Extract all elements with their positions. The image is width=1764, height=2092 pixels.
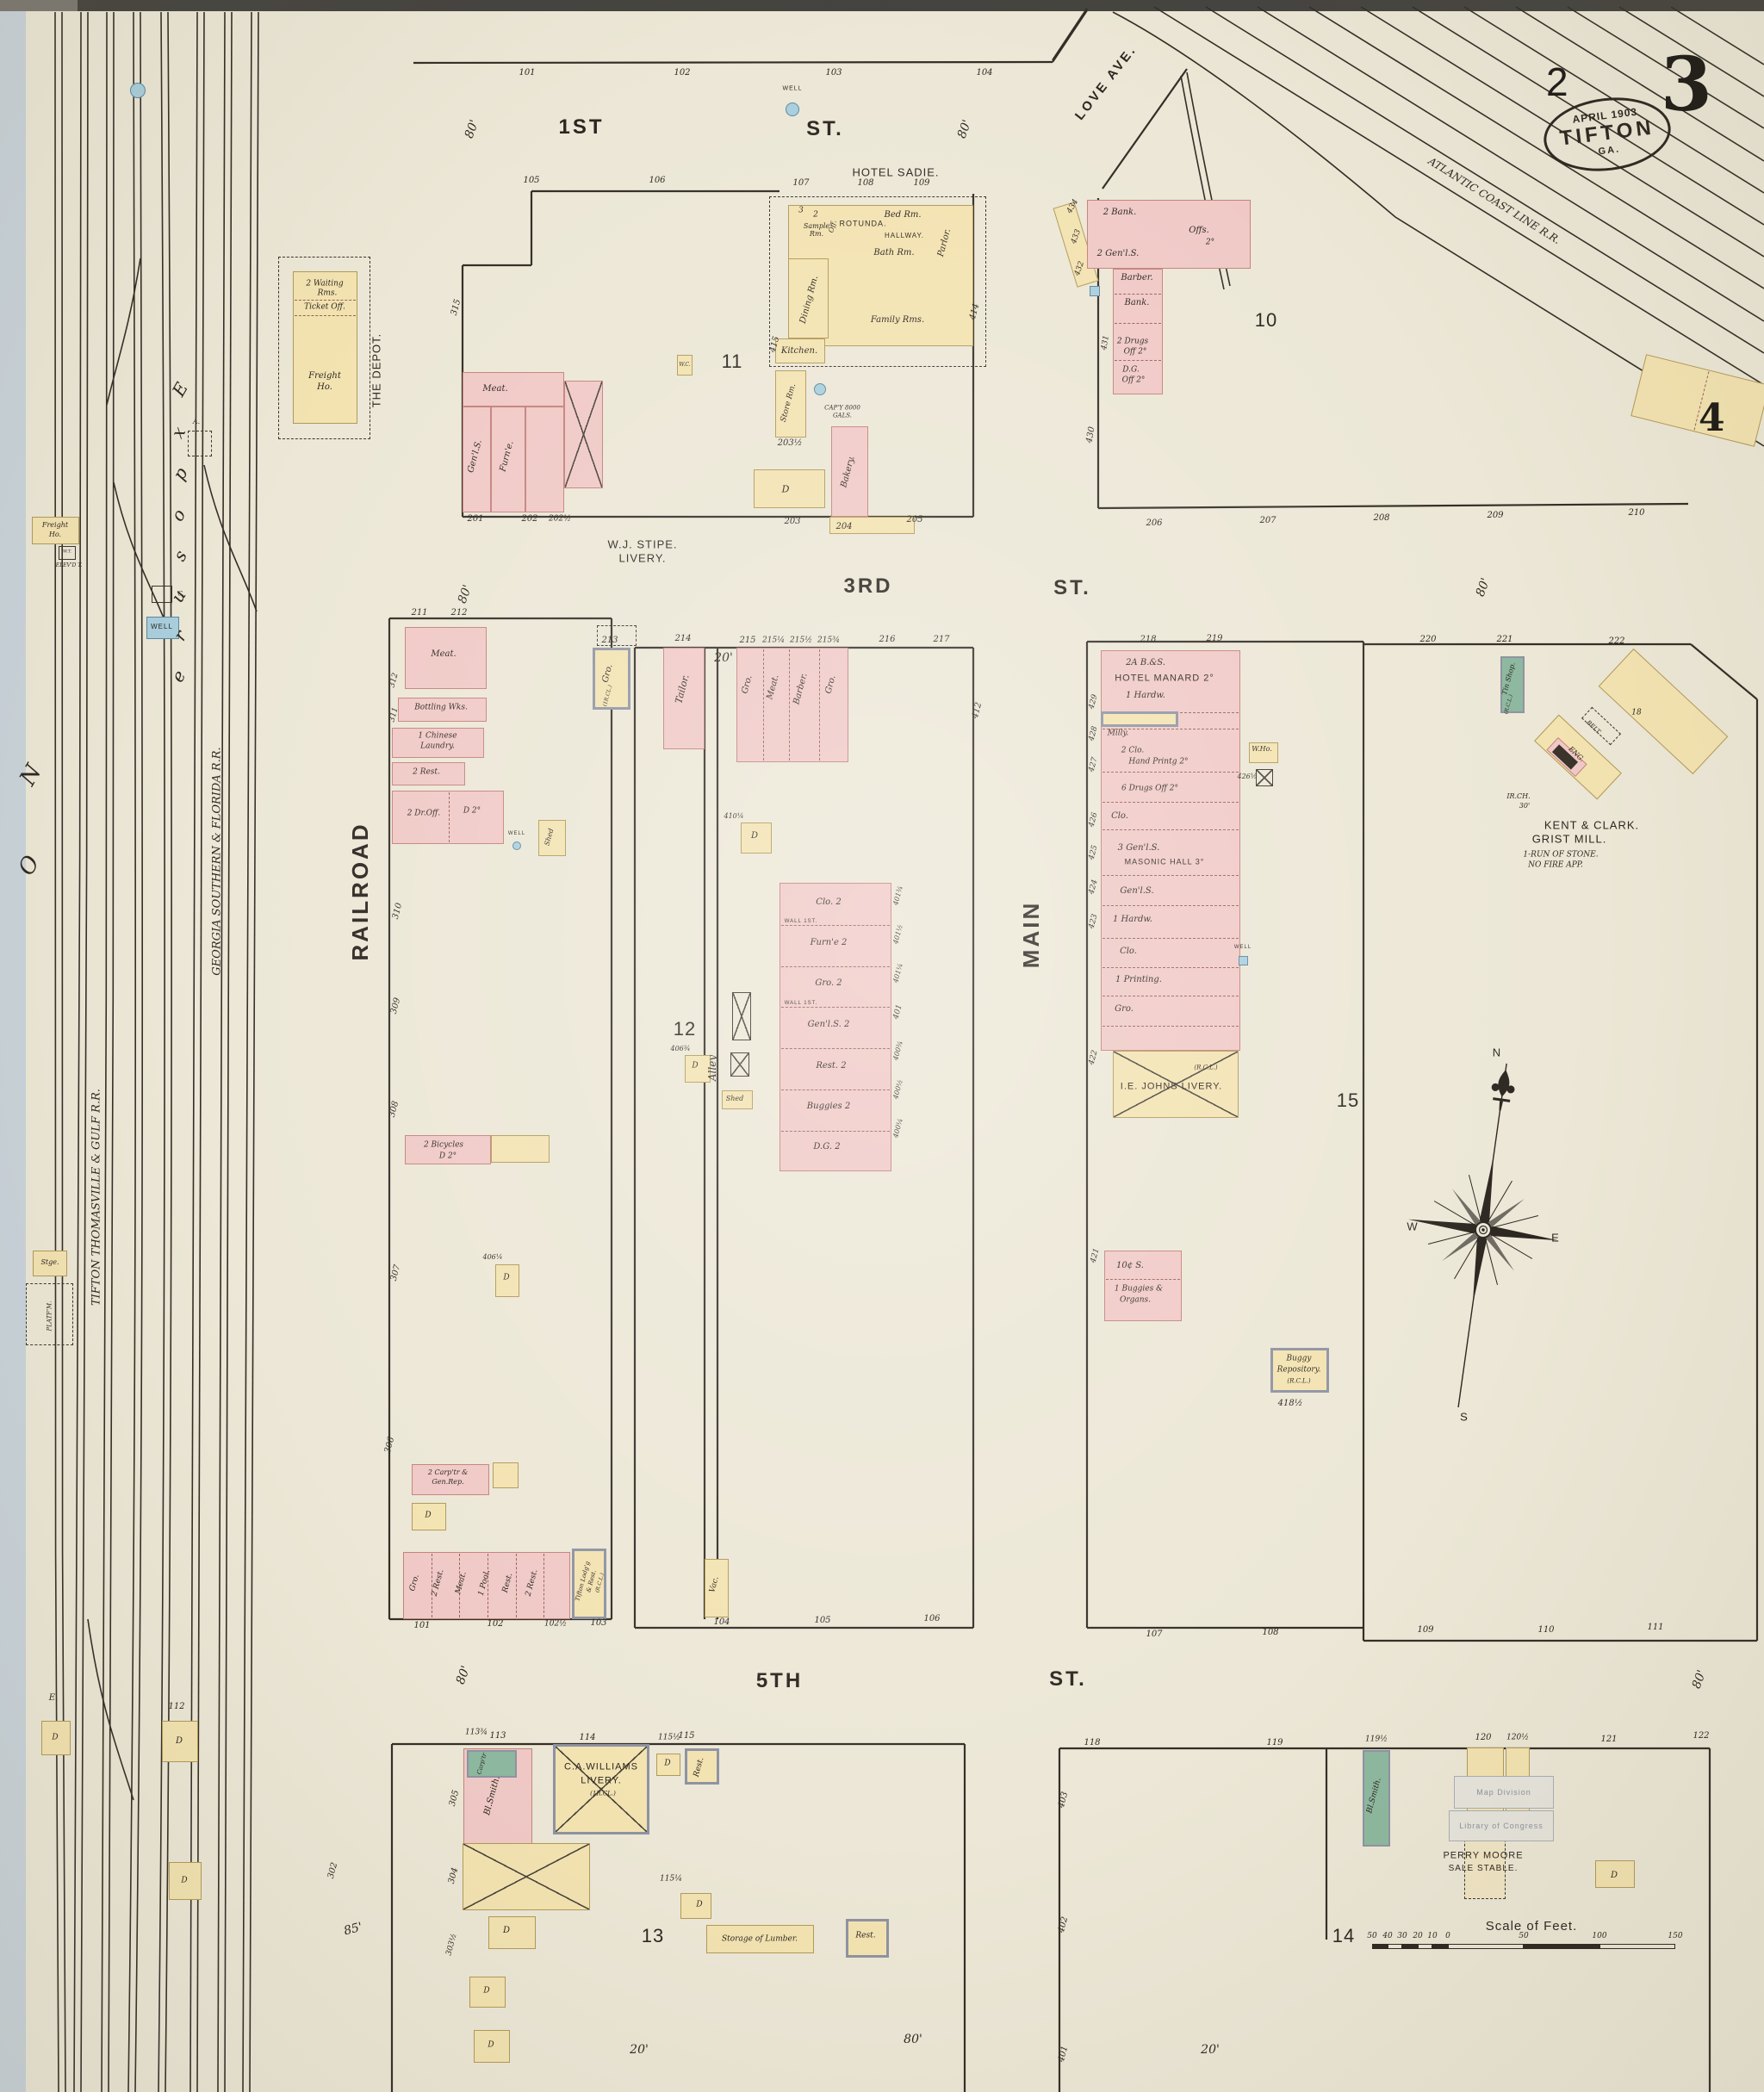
well bbox=[1239, 956, 1248, 965]
map-label: D 2° bbox=[439, 1153, 457, 1161]
map-label: 206 bbox=[1146, 519, 1162, 528]
party-wall-line bbox=[763, 649, 764, 760]
map-label: Ho. bbox=[317, 383, 332, 392]
map-label: 105 bbox=[523, 177, 539, 185]
party-wall-line bbox=[1102, 905, 1239, 906]
tower bbox=[732, 992, 751, 1040]
map-label: 103 bbox=[590, 1619, 606, 1628]
map-label: 426½ bbox=[1237, 773, 1257, 780]
map-label: 121 bbox=[1600, 1735, 1617, 1744]
map-label: 109 bbox=[1417, 1626, 1433, 1635]
map-label: Shed bbox=[726, 1096, 744, 1102]
map-label: 107 bbox=[792, 179, 809, 188]
map-label: Bottling Wks. bbox=[414, 705, 468, 712]
map-label: D bbox=[692, 1063, 698, 1071]
map-label: 1 Chinese bbox=[418, 733, 457, 741]
scale-tick: 10 bbox=[1427, 1932, 1437, 1940]
perry-moore-label: PERRY MOORE bbox=[1443, 1852, 1523, 1861]
map-label: Repository. bbox=[1277, 1367, 1321, 1375]
map-label: SALE STABLE. bbox=[1449, 1865, 1519, 1873]
map-label: 10¢ S. bbox=[1116, 1262, 1144, 1270]
map-label: Freight bbox=[42, 522, 68, 529]
map-label: 215 bbox=[739, 636, 755, 645]
map-label: (R.C.L.) bbox=[1287, 1379, 1310, 1385]
map-label: Freight bbox=[308, 372, 341, 381]
map-label: 215½ bbox=[790, 637, 812, 645]
map-label: 218 bbox=[1140, 636, 1156, 644]
map-label: HALLWAY. bbox=[885, 233, 924, 239]
map-label: WELL bbox=[1234, 945, 1252, 950]
map-label: Milly. bbox=[1108, 730, 1129, 738]
store-row bbox=[736, 648, 848, 762]
map-label: 203½ bbox=[778, 439, 803, 448]
map-label: Bed Rm. bbox=[884, 211, 921, 220]
railroad-track bbox=[114, 482, 168, 629]
johns-livery-label: I.E. JOHNS LIVERY. bbox=[1121, 1083, 1222, 1092]
map-label: 2° bbox=[1206, 239, 1214, 247]
map-label: WELL bbox=[782, 86, 802, 92]
party-wall-line bbox=[1115, 360, 1161, 361]
map-label: 209 bbox=[1487, 512, 1503, 520]
scale-segment bbox=[1599, 1944, 1675, 1949]
map-label: D bbox=[483, 1988, 489, 1996]
map-label: Buggies 2 bbox=[807, 1102, 850, 1111]
map-label: 202 bbox=[521, 515, 537, 524]
compass-n: N bbox=[1493, 1047, 1501, 1058]
map-label: E. bbox=[49, 1694, 58, 1703]
map-label: Gen.Rep. bbox=[432, 1479, 463, 1486]
party-wall-line bbox=[1102, 1026, 1239, 1027]
map-label: Family Rms. bbox=[871, 316, 924, 325]
party-wall-line bbox=[1102, 802, 1239, 803]
map-label: 109 bbox=[913, 179, 929, 188]
map-label: 220 bbox=[1419, 636, 1436, 644]
map-label: 106 bbox=[923, 1615, 940, 1623]
map-label: Gro. 2 bbox=[815, 979, 842, 988]
party-wall-line bbox=[543, 1554, 544, 1617]
block-number-13: 13 bbox=[642, 1927, 664, 1946]
party-wall-line bbox=[1102, 967, 1239, 968]
street-line bbox=[413, 62, 1053, 63]
williams-livery-building bbox=[553, 1744, 649, 1834]
map-label: D bbox=[176, 1737, 183, 1746]
map-label: Offs. bbox=[1189, 227, 1209, 235]
map-label: D 2° bbox=[463, 808, 481, 816]
map-label: 211 bbox=[411, 609, 427, 618]
map-label: Gro. bbox=[1115, 1005, 1134, 1014]
barn bbox=[463, 1843, 590, 1910]
map-label: 221 bbox=[1496, 636, 1512, 644]
railroad-track bbox=[81, 12, 88, 2092]
map-label: Rest. 2 bbox=[816, 1062, 846, 1071]
well-icon bbox=[130, 83, 146, 98]
map-label: 410¼ bbox=[724, 813, 743, 820]
street-1st: 1ST bbox=[558, 117, 604, 138]
map-label: 2 Rest. bbox=[413, 769, 440, 777]
map-label: 418½ bbox=[1278, 1400, 1303, 1408]
map-label: 212 bbox=[450, 609, 467, 618]
railroad-track bbox=[158, 12, 165, 2092]
map-label: Clo. bbox=[1111, 812, 1128, 821]
map-label: D.G. bbox=[1122, 367, 1140, 375]
sanborn-map-sheet: 1STST.3RDST.5THST.MAINRAILROADLOVE AVE.A… bbox=[0, 0, 1764, 2092]
scale-segment bbox=[1432, 1944, 1448, 1949]
map-label: Off 2° bbox=[1124, 349, 1147, 357]
map-label: IR.CH. bbox=[1506, 793, 1530, 800]
railroad-track bbox=[197, 12, 206, 2092]
map-label: 2 Dr.Off. bbox=[407, 810, 441, 818]
street-3rd-st: ST. bbox=[1053, 578, 1091, 599]
loc-stamp-map-division: Map Division bbox=[1454, 1776, 1554, 1809]
party-wall-line bbox=[781, 1048, 890, 1049]
loc-stamp-library: Library of Congress bbox=[1449, 1810, 1554, 1841]
tower bbox=[730, 1052, 749, 1077]
party-wall-line bbox=[449, 792, 450, 842]
party-wall-line bbox=[781, 925, 890, 926]
building-y bbox=[491, 1135, 550, 1163]
map-label: 2A B.&S. bbox=[1126, 659, 1165, 667]
scale-segment bbox=[1524, 1944, 1599, 1949]
street-railroad: RAILROAD bbox=[349, 822, 371, 960]
map-label: 119½ bbox=[1365, 1736, 1388, 1744]
map-label: 108 bbox=[857, 179, 873, 188]
map-label: 20' bbox=[630, 2044, 649, 2056]
map-label: GRIST MILL. bbox=[1532, 834, 1607, 845]
map-label: 101 bbox=[519, 69, 535, 78]
map-label: 2 Drugs bbox=[1117, 338, 1148, 346]
alley-label: Alley bbox=[707, 1055, 717, 1081]
map-label: 217 bbox=[933, 636, 949, 644]
map-label: 202½ bbox=[549, 516, 571, 524]
map-label: 102½ bbox=[544, 1621, 567, 1629]
street-1st-st: ST. bbox=[806, 119, 844, 140]
map-label: Clo. 2 bbox=[816, 898, 841, 907]
map-label: 20' bbox=[714, 652, 733, 664]
railroad-track bbox=[74, 12, 81, 2092]
map-label: 208 bbox=[1373, 514, 1389, 523]
map-label: 1 Hardw. bbox=[1126, 692, 1165, 700]
map-label: D.G. 2 bbox=[813, 1143, 840, 1152]
lumber-storage-label: Storage of Lumber. bbox=[722, 1936, 798, 1944]
bank-label: 2 Bank. bbox=[1103, 208, 1137, 217]
railroad-track bbox=[54, 12, 59, 2092]
map-label: D bbox=[503, 1275, 509, 1282]
masonic-hall-label: MASONIC HALL 3° bbox=[1125, 859, 1205, 866]
map-label: 6 Drugs Off 2° bbox=[1121, 785, 1178, 793]
map-label: LIVERY. bbox=[581, 1777, 622, 1786]
railroad-track bbox=[165, 12, 171, 2092]
scale-tick: 30 bbox=[1397, 1932, 1407, 1940]
map-label: NO FIRE APP. bbox=[1528, 862, 1583, 870]
scale-label: Scale of Feet. bbox=[1486, 1920, 1578, 1933]
party-wall-line bbox=[781, 1089, 890, 1090]
map-label: 114 bbox=[579, 1734, 595, 1742]
block-number-12: 12 bbox=[674, 1020, 696, 1039]
grocery-ironclad bbox=[593, 648, 630, 710]
map-label: 216 bbox=[879, 636, 895, 644]
map-label: 2 Gen'l.S. bbox=[1097, 250, 1140, 258]
well-icon bbox=[814, 383, 826, 395]
map-label: 102 bbox=[487, 1620, 503, 1629]
map-label: 18 bbox=[1631, 710, 1641, 717]
compass-e: E bbox=[1551, 1232, 1560, 1244]
party-wall-line bbox=[781, 966, 890, 967]
stipe-livery-label: W.J. STIPE. bbox=[607, 539, 677, 550]
map-label: ELEV'D T. bbox=[56, 563, 82, 568]
building-g bbox=[1101, 711, 1178, 727]
map-label: 110 bbox=[1537, 1626, 1554, 1635]
scale-segment bbox=[1372, 1944, 1388, 1949]
map-label: D bbox=[782, 485, 790, 494]
map-label: WELL bbox=[151, 624, 173, 630]
hotel-manard-label: HOTEL MANARD 2° bbox=[1115, 674, 1214, 684]
map-label: 406¾ bbox=[670, 1046, 690, 1052]
map-label: 213 bbox=[601, 636, 618, 645]
railroad-track bbox=[109, 12, 114, 2092]
map-label: 104 bbox=[976, 69, 992, 78]
map-label: GALS. bbox=[833, 413, 852, 419]
map-label: 115½ bbox=[658, 1735, 680, 1742]
map-label: 101 bbox=[413, 1622, 430, 1630]
adjacent-sheet-2: 2 bbox=[1546, 59, 1568, 105]
dwelling bbox=[488, 1916, 536, 1949]
map-label: 406¼ bbox=[482, 1254, 502, 1261]
map-label: 207 bbox=[1259, 517, 1276, 525]
map-label: WELL bbox=[508, 831, 525, 836]
map-label: Sample bbox=[804, 223, 829, 230]
map-label: Barber. bbox=[1121, 274, 1152, 282]
party-wall-line bbox=[295, 315, 356, 316]
street-5th-st: ST. bbox=[1049, 1669, 1087, 1690]
map-label: W.Ho. bbox=[1252, 746, 1272, 753]
map-label: 102 bbox=[674, 69, 690, 78]
building-b bbox=[1090, 286, 1100, 296]
scale-segment bbox=[1402, 1944, 1418, 1949]
map-label: Rest. bbox=[855, 1933, 875, 1940]
map-label: PLATF'M. bbox=[47, 1301, 53, 1332]
map-label: D bbox=[503, 1927, 510, 1935]
map-label: Rms. bbox=[318, 290, 338, 298]
map-label: 115 bbox=[678, 1732, 694, 1741]
map-label: ROTUNDA. bbox=[840, 220, 887, 228]
street-3rd: 3RD bbox=[843, 576, 892, 597]
map-label: 113¾ bbox=[465, 1729, 488, 1737]
street-5th: 5TH bbox=[756, 1671, 803, 1692]
party-wall-line bbox=[789, 649, 790, 760]
map-label: Stge. bbox=[40, 1259, 59, 1266]
map-label: 203 bbox=[784, 518, 800, 526]
map-label: Laundry. bbox=[420, 743, 455, 751]
map-label: 105 bbox=[814, 1617, 830, 1625]
map-label: Off 2° bbox=[1122, 377, 1146, 385]
map-label: 119 bbox=[1266, 1739, 1283, 1747]
block-number-15: 15 bbox=[1337, 1091, 1359, 1110]
map-label: Kitchen. bbox=[781, 347, 817, 356]
well-icon bbox=[512, 841, 521, 850]
map-label: CAP'Y 8000 bbox=[824, 406, 860, 412]
compass-w: W bbox=[1407, 1221, 1418, 1232]
compass-s: S bbox=[1460, 1412, 1469, 1423]
railroad-track bbox=[102, 12, 107, 2092]
map-label: W.C. bbox=[679, 363, 690, 368]
map-label: 122 bbox=[1693, 1732, 1709, 1741]
map-label: Rm. bbox=[810, 231, 823, 238]
party-wall-line bbox=[781, 1007, 890, 1008]
party-wall-line bbox=[781, 1131, 890, 1132]
map-label: 115¼ bbox=[660, 1876, 682, 1884]
map-label: 2 Waiting bbox=[306, 281, 343, 289]
fleur-de-lis-icon bbox=[1488, 1068, 1517, 1112]
scale-tick: 100 bbox=[1592, 1932, 1606, 1940]
party-wall-line bbox=[1102, 996, 1239, 996]
street-line bbox=[1102, 69, 1187, 189]
map-label: 120½ bbox=[1506, 1735, 1529, 1742]
map-label: 111 bbox=[1647, 1623, 1663, 1632]
map-label: D bbox=[52, 1735, 58, 1742]
map-label: 103 bbox=[825, 69, 842, 78]
party-wall-line bbox=[1102, 829, 1239, 830]
map-label: D bbox=[1611, 1872, 1618, 1880]
sheet-number: 3 bbox=[1661, 41, 1712, 128]
map-label: (1R.CL.) bbox=[590, 1791, 616, 1797]
williams-livery-label: C.A.WILLIAMS bbox=[564, 1763, 638, 1772]
map-label: 120 bbox=[1475, 1734, 1491, 1742]
scale-tick: 50 bbox=[1519, 1932, 1528, 1940]
map-label: 3 Gen'l.S. bbox=[1118, 844, 1160, 853]
map-label: Furn'e 2 bbox=[811, 939, 848, 947]
map-label: Organs. bbox=[1120, 1297, 1151, 1305]
railroad-track bbox=[135, 12, 142, 2092]
scale-segment bbox=[1448, 1944, 1524, 1949]
street-line bbox=[1691, 644, 1757, 699]
street-line bbox=[1098, 504, 1688, 508]
street-line bbox=[1053, 10, 1087, 62]
map-label: 204 bbox=[835, 523, 852, 531]
map-label: Clo. bbox=[1120, 947, 1137, 956]
map-label: A. bbox=[193, 419, 200, 425]
scale-tick: 50 bbox=[1367, 1932, 1376, 1940]
map-label: 215¾ bbox=[817, 637, 840, 645]
railroad-tifton-thomasville: TIFTON THOMASVILLE & GULF R.R. bbox=[91, 1089, 102, 1306]
stipe-livery-building bbox=[564, 381, 603, 488]
map-label: 1-RUN OF STONE. bbox=[1523, 852, 1598, 860]
map-label: Bank. bbox=[1125, 299, 1150, 307]
map-label: Buggy bbox=[1286, 1356, 1311, 1363]
map-label: 20' bbox=[1201, 2044, 1220, 2056]
depot-label: THE DEPOT. bbox=[371, 333, 382, 408]
grist-mill-label: KENT & CLARK. bbox=[1544, 820, 1639, 831]
shed bbox=[493, 1462, 519, 1488]
railroad-track bbox=[250, 12, 259, 2092]
party-wall-line bbox=[1102, 875, 1239, 876]
map-label: 113 bbox=[489, 1732, 506, 1741]
meat-market bbox=[463, 372, 564, 407]
railroad-track bbox=[61, 12, 65, 2092]
street-main: MAIN bbox=[1020, 901, 1042, 968]
map-label: 2 bbox=[813, 212, 818, 220]
party-wall-line bbox=[1115, 323, 1161, 324]
map-label: 205 bbox=[906, 516, 922, 525]
map-label: 30' bbox=[1519, 803, 1530, 810]
map-label: 201 bbox=[467, 515, 483, 524]
map-label: Meat. bbox=[431, 650, 456, 659]
map-label: 219 bbox=[1206, 635, 1222, 643]
map-label: D bbox=[751, 832, 758, 841]
railroad-track bbox=[190, 12, 199, 2092]
party-wall-line bbox=[819, 649, 820, 760]
railroad-track bbox=[128, 12, 135, 2092]
map-label: Ho. bbox=[49, 531, 61, 538]
map-label: WALL 1ST. bbox=[785, 919, 818, 924]
map-label: D bbox=[488, 2042, 494, 2050]
map-label: D bbox=[425, 1512, 431, 1520]
scale-tick: 20 bbox=[1413, 1932, 1422, 1940]
map-label: Hand Printg 2° bbox=[1128, 759, 1188, 767]
building-n bbox=[467, 1750, 517, 1778]
party-wall-line bbox=[516, 1554, 517, 1617]
map-label: C. bbox=[177, 592, 183, 598]
railroad-track bbox=[218, 12, 227, 2092]
map-label: 1 Buggies & bbox=[1115, 1286, 1163, 1294]
adjacent-sheet-4: 4 bbox=[1699, 396, 1725, 440]
map-label: 214 bbox=[674, 635, 691, 643]
map-label: WALL 1ST. bbox=[785, 1001, 818, 1006]
map-label: 112 bbox=[168, 1703, 184, 1711]
party-wall-line bbox=[1102, 772, 1239, 773]
scale-segment bbox=[1418, 1944, 1432, 1949]
block-number-14: 14 bbox=[1332, 1927, 1355, 1946]
map-label: 1 Hardw. bbox=[1113, 916, 1152, 924]
map-label: 104 bbox=[713, 1618, 730, 1627]
party-wall-line bbox=[1115, 294, 1161, 295]
scale-tick: 40 bbox=[1382, 1932, 1392, 1940]
map-label: D bbox=[696, 1902, 702, 1909]
map-label: D bbox=[664, 1760, 670, 1768]
map-label: 80' bbox=[904, 2033, 922, 2045]
map-label: 215¼ bbox=[762, 637, 785, 645]
map-label: LIVERY. bbox=[619, 553, 667, 564]
map-label: 2 Clo. bbox=[1121, 748, 1144, 755]
building-w bbox=[188, 431, 212, 456]
map-label: Ticket Off. bbox=[304, 304, 345, 312]
map-label: D bbox=[181, 1878, 187, 1885]
map-label: 108 bbox=[1262, 1629, 1278, 1637]
map-label: (R.C.L.) bbox=[1194, 1065, 1217, 1071]
map-label: 2 Carp'tr & bbox=[428, 1469, 468, 1476]
map-label: 118 bbox=[1084, 1739, 1100, 1747]
scale-tick: 0 bbox=[1445, 1932, 1450, 1940]
hotel-sadie-label: HOTEL SADIE. bbox=[852, 167, 939, 178]
party-wall-line bbox=[1102, 938, 1239, 939]
party-wall-line bbox=[295, 300, 356, 301]
map-label: 107 bbox=[1146, 1630, 1162, 1639]
map-label: 1 Printing. bbox=[1115, 976, 1162, 984]
map-label: Meat. bbox=[482, 385, 507, 394]
railroad-track bbox=[225, 12, 233, 2092]
map-label: Gen'l.S. 2 bbox=[808, 1021, 850, 1029]
block-number-10: 10 bbox=[1255, 311, 1277, 330]
map-label: Bath Rm. bbox=[873, 249, 914, 258]
map-label: 106 bbox=[649, 177, 665, 185]
party-wall-line bbox=[1106, 1279, 1180, 1280]
railroad-track bbox=[107, 258, 140, 405]
map-label: 3 bbox=[798, 208, 804, 215]
scale-tick: 150 bbox=[1668, 1932, 1682, 1940]
scale-of-feet: Scale of Feet. 5040302010050100150 bbox=[1372, 1932, 1699, 1966]
map-label: Gen'l.S. bbox=[1120, 887, 1153, 896]
scale-segment bbox=[1388, 1944, 1402, 1949]
block-number-11: 11 bbox=[722, 352, 743, 371]
